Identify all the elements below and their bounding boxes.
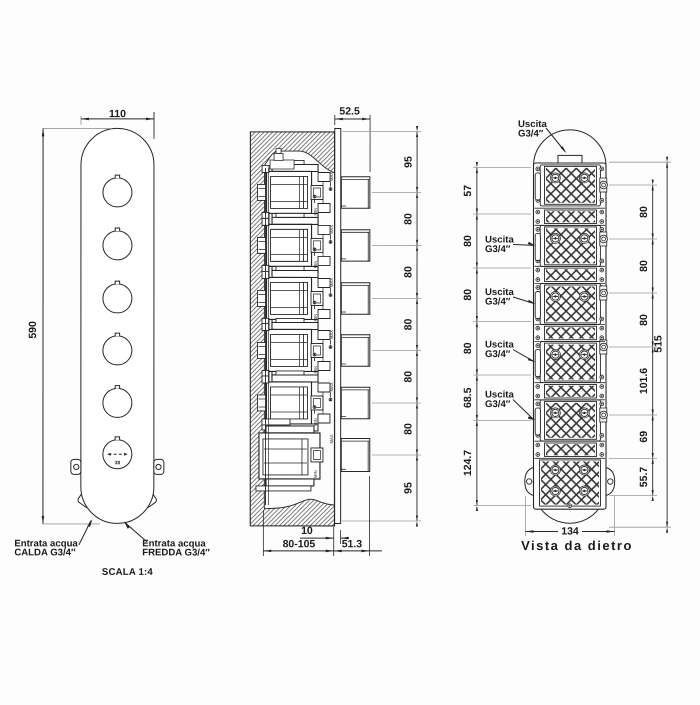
svg-text:95: 95: [403, 156, 415, 168]
svg-text:MIN: MIN: [313, 418, 318, 426]
svg-text:10: 10: [301, 525, 313, 537]
svg-text:MAX: MAX: [329, 382, 334, 391]
svg-text:G3/4″: G3/4″: [518, 129, 544, 140]
svg-text:52.5: 52.5: [339, 105, 360, 117]
svg-text:MAX: MAX: [329, 225, 334, 234]
svg-text:G3/4″: G3/4″: [485, 349, 511, 360]
svg-text:CALDA G3/4″: CALDA G3/4″: [14, 547, 76, 558]
svg-text:110: 110: [109, 108, 126, 120]
svg-text:80: 80: [403, 213, 415, 225]
svg-text:MIN: MIN: [313, 208, 318, 216]
svg-text:G3/4″: G3/4″: [485, 399, 511, 410]
svg-text:MIN: MIN: [313, 314, 318, 322]
svg-text:MAX: MAX: [329, 172, 334, 181]
svg-text:68.5: 68.5: [462, 387, 474, 408]
svg-text:SCALA 1:4: SCALA 1:4: [102, 567, 153, 578]
svg-text:80: 80: [402, 423, 414, 435]
svg-text:80: 80: [638, 314, 650, 326]
svg-text:38: 38: [115, 460, 121, 466]
svg-text:80: 80: [462, 235, 474, 247]
svg-text:124.7: 124.7: [462, 450, 474, 476]
svg-text:80-105: 80-105: [283, 538, 316, 550]
svg-text:MIN: MIN: [313, 366, 318, 374]
svg-text:MIN: MIN: [313, 470, 318, 478]
svg-text:55.7: 55.7: [638, 467, 650, 488]
svg-text:80: 80: [462, 289, 474, 301]
svg-text:G3/4″: G3/4″: [485, 297, 511, 308]
svg-text:80: 80: [638, 260, 650, 272]
svg-text:51.3: 51.3: [342, 538, 363, 550]
svg-text:80: 80: [638, 206, 650, 218]
svg-text:69: 69: [638, 431, 650, 443]
svg-text:95: 95: [402, 482, 414, 494]
svg-text:Vista da dietro: Vista da dietro: [521, 538, 633, 553]
svg-text:590: 590: [27, 321, 39, 339]
svg-text:G3/4″: G3/4″: [485, 244, 511, 255]
svg-text:57: 57: [462, 185, 474, 197]
svg-text:MAX: MAX: [329, 434, 334, 443]
svg-text:101.6: 101.6: [638, 368, 650, 394]
svg-text:515: 515: [653, 335, 665, 353]
svg-text:134: 134: [561, 526, 579, 538]
svg-text:MAX: MAX: [329, 330, 334, 339]
svg-text:80: 80: [403, 266, 415, 278]
svg-text:MAX: MAX: [329, 278, 334, 287]
svg-text:MIN: MIN: [313, 261, 318, 269]
svg-text:80: 80: [462, 342, 474, 354]
svg-text:80: 80: [402, 371, 414, 383]
svg-text:FREDDA G3/4″: FREDDA G3/4″: [142, 547, 210, 558]
svg-text:80: 80: [403, 319, 415, 331]
